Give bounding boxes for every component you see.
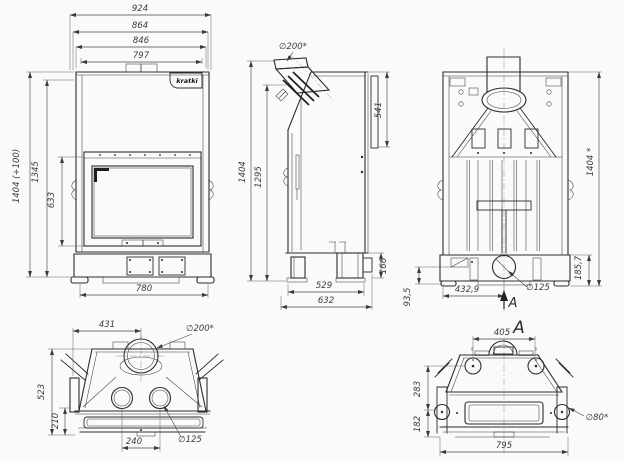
dim-rear-outlet-offset: 432,9 — [455, 285, 479, 295]
front-top-tab — [126, 64, 141, 72]
rear-opening — [472, 129, 485, 148]
dim-side-overall-height: 1404 — [238, 161, 248, 183]
dim-rear-outlet-diameter: ∅125 — [526, 283, 550, 293]
top-front-grille — [84, 417, 203, 428]
dim-top-outlet-spacing: 240 — [126, 437, 142, 447]
section-a-view: A 405 283 182 ∅80* 7 — [413, 318, 608, 456]
rear-ribs — [467, 160, 540, 251]
dim-rear-overall-height: 1404 * — [586, 148, 596, 177]
rear-opening — [525, 129, 538, 148]
dim-section-inlet-diameter: ∅80* — [586, 413, 608, 423]
side-door-handle — [296, 155, 299, 189]
dim-section-height-2: 182 — [413, 416, 423, 432]
section-cut-arrow — [500, 290, 508, 301]
front-body-outline — [76, 72, 209, 252]
front-left-foot — [71, 277, 88, 283]
dim-rear-base-height: 185,7 — [574, 255, 584, 280]
dim-front-overall-height: 1404 (+100) — [12, 149, 22, 203]
dim-front-width-4: 797 — [133, 51, 150, 61]
dim-top-front-depth: 210 — [51, 413, 61, 429]
section-view-label: A — [512, 318, 525, 338]
dim-side-base-height: 166 — [379, 257, 389, 274]
technical-drawing-canvas: kratki 924 864 846 — [0, 0, 624, 460]
dim-front-door-height: 633 — [47, 192, 57, 208]
dim-front-width-2: 864 — [132, 21, 148, 31]
dim-front-width-3: 846 — [133, 36, 150, 46]
side-view: ∅200* 541 1404 1295 166 529 632 — [238, 42, 390, 310]
top-view: 431 ∅200* 523 210 240 ∅125 — [37, 320, 223, 452]
front-top-tab — [141, 64, 157, 72]
dim-side-height-2: 1295 — [254, 166, 264, 188]
rear-body-outline — [443, 72, 568, 255]
dim-side-depth-1: 529 — [316, 281, 332, 291]
dim-side-depth-2: 632 — [318, 296, 334, 306]
side-body-outline — [288, 72, 368, 253]
dim-rear-height-3: 93,5 — [403, 288, 413, 307]
dim-top-flue-offset: 431 — [99, 320, 115, 330]
side-rear-box — [337, 253, 363, 278]
dim-section-base-width: 795 — [496, 441, 512, 451]
section-label-a: A — [508, 296, 518, 311]
dim-section-height-1: 283 — [413, 381, 423, 397]
front-view: kratki 924 864 846 — [12, 4, 214, 298]
technical-drawing-page: kratki 924 864 846 — [0, 0, 624, 460]
door-corner-mark — [95, 169, 110, 183]
top-outlet-circle — [150, 388, 171, 409]
dim-top-depth: 523 — [37, 384, 47, 400]
front-right-foot — [197, 277, 214, 283]
dim-side-rear-panel-height: 541 — [374, 102, 384, 118]
side-front-leg — [291, 257, 305, 278]
front-base — [74, 254, 211, 277]
brand-logo-text: kratki — [176, 77, 198, 85]
rear-flue-collar — [487, 57, 520, 92]
dim-top-flue-diameter: ∅200* — [186, 324, 214, 334]
top-left-rail — [70, 378, 79, 412]
dim-front-base-width: 780 — [136, 284, 152, 294]
side-stub-pipe — [276, 89, 288, 101]
top-outlet-circle — [112, 388, 133, 409]
top-body-outline — [79, 349, 206, 411]
dim-front-height-2: 1345 — [31, 161, 41, 183]
rear-opening — [498, 129, 511, 148]
dim-section-top-width: 405 — [494, 328, 510, 338]
rear-view: 1404 * 185,7 432,9 ∅125 93,5 A — [403, 48, 602, 312]
dim-side-flue-diameter: ∅200* — [279, 42, 307, 52]
section-side-rails — [437, 387, 567, 433]
dim-front-overall-width: 924 — [132, 4, 148, 14]
side-rear-pipe — [363, 258, 372, 272]
dim-top-outlet-diameter: ∅125 — [178, 435, 202, 445]
water-connection-pipes — [329, 242, 346, 253]
front-door-glass — [92, 166, 193, 238]
